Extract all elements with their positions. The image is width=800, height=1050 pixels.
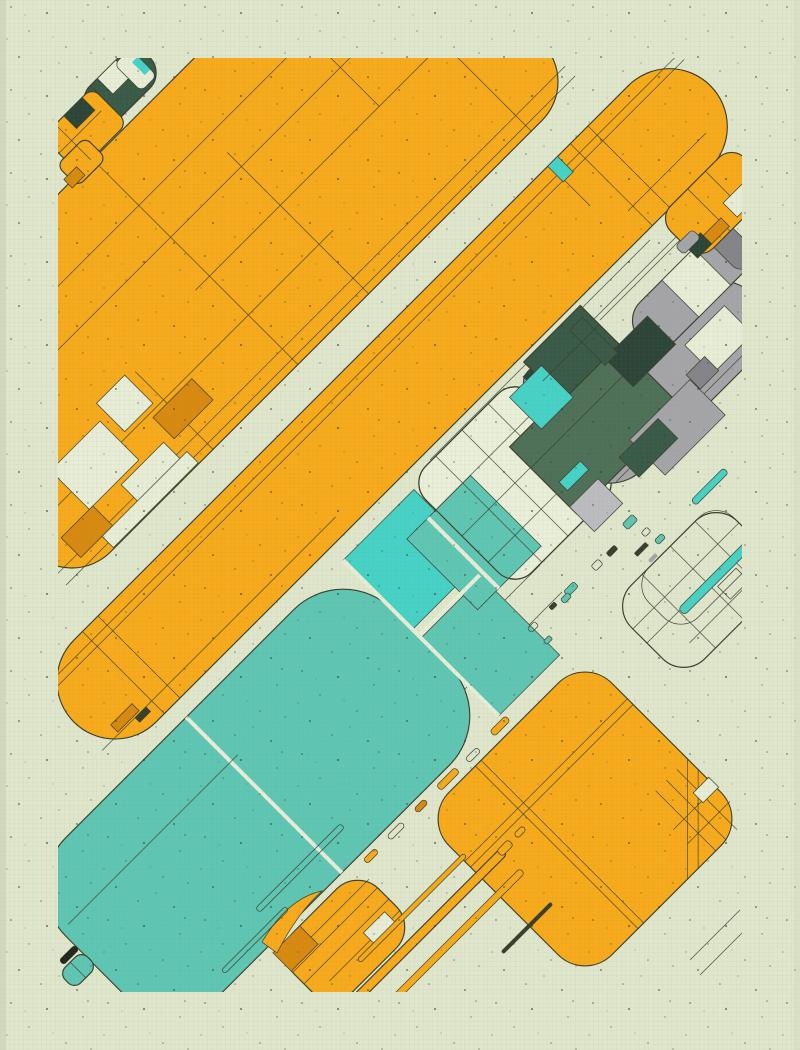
edge-shade-left	[0, 0, 6, 1050]
speckle-texture-overlay	[0, 0, 800, 1050]
edge-shade-right	[794, 0, 800, 1050]
abstract-artwork	[0, 0, 800, 1050]
artwork-canvas	[0, 0, 800, 1050]
